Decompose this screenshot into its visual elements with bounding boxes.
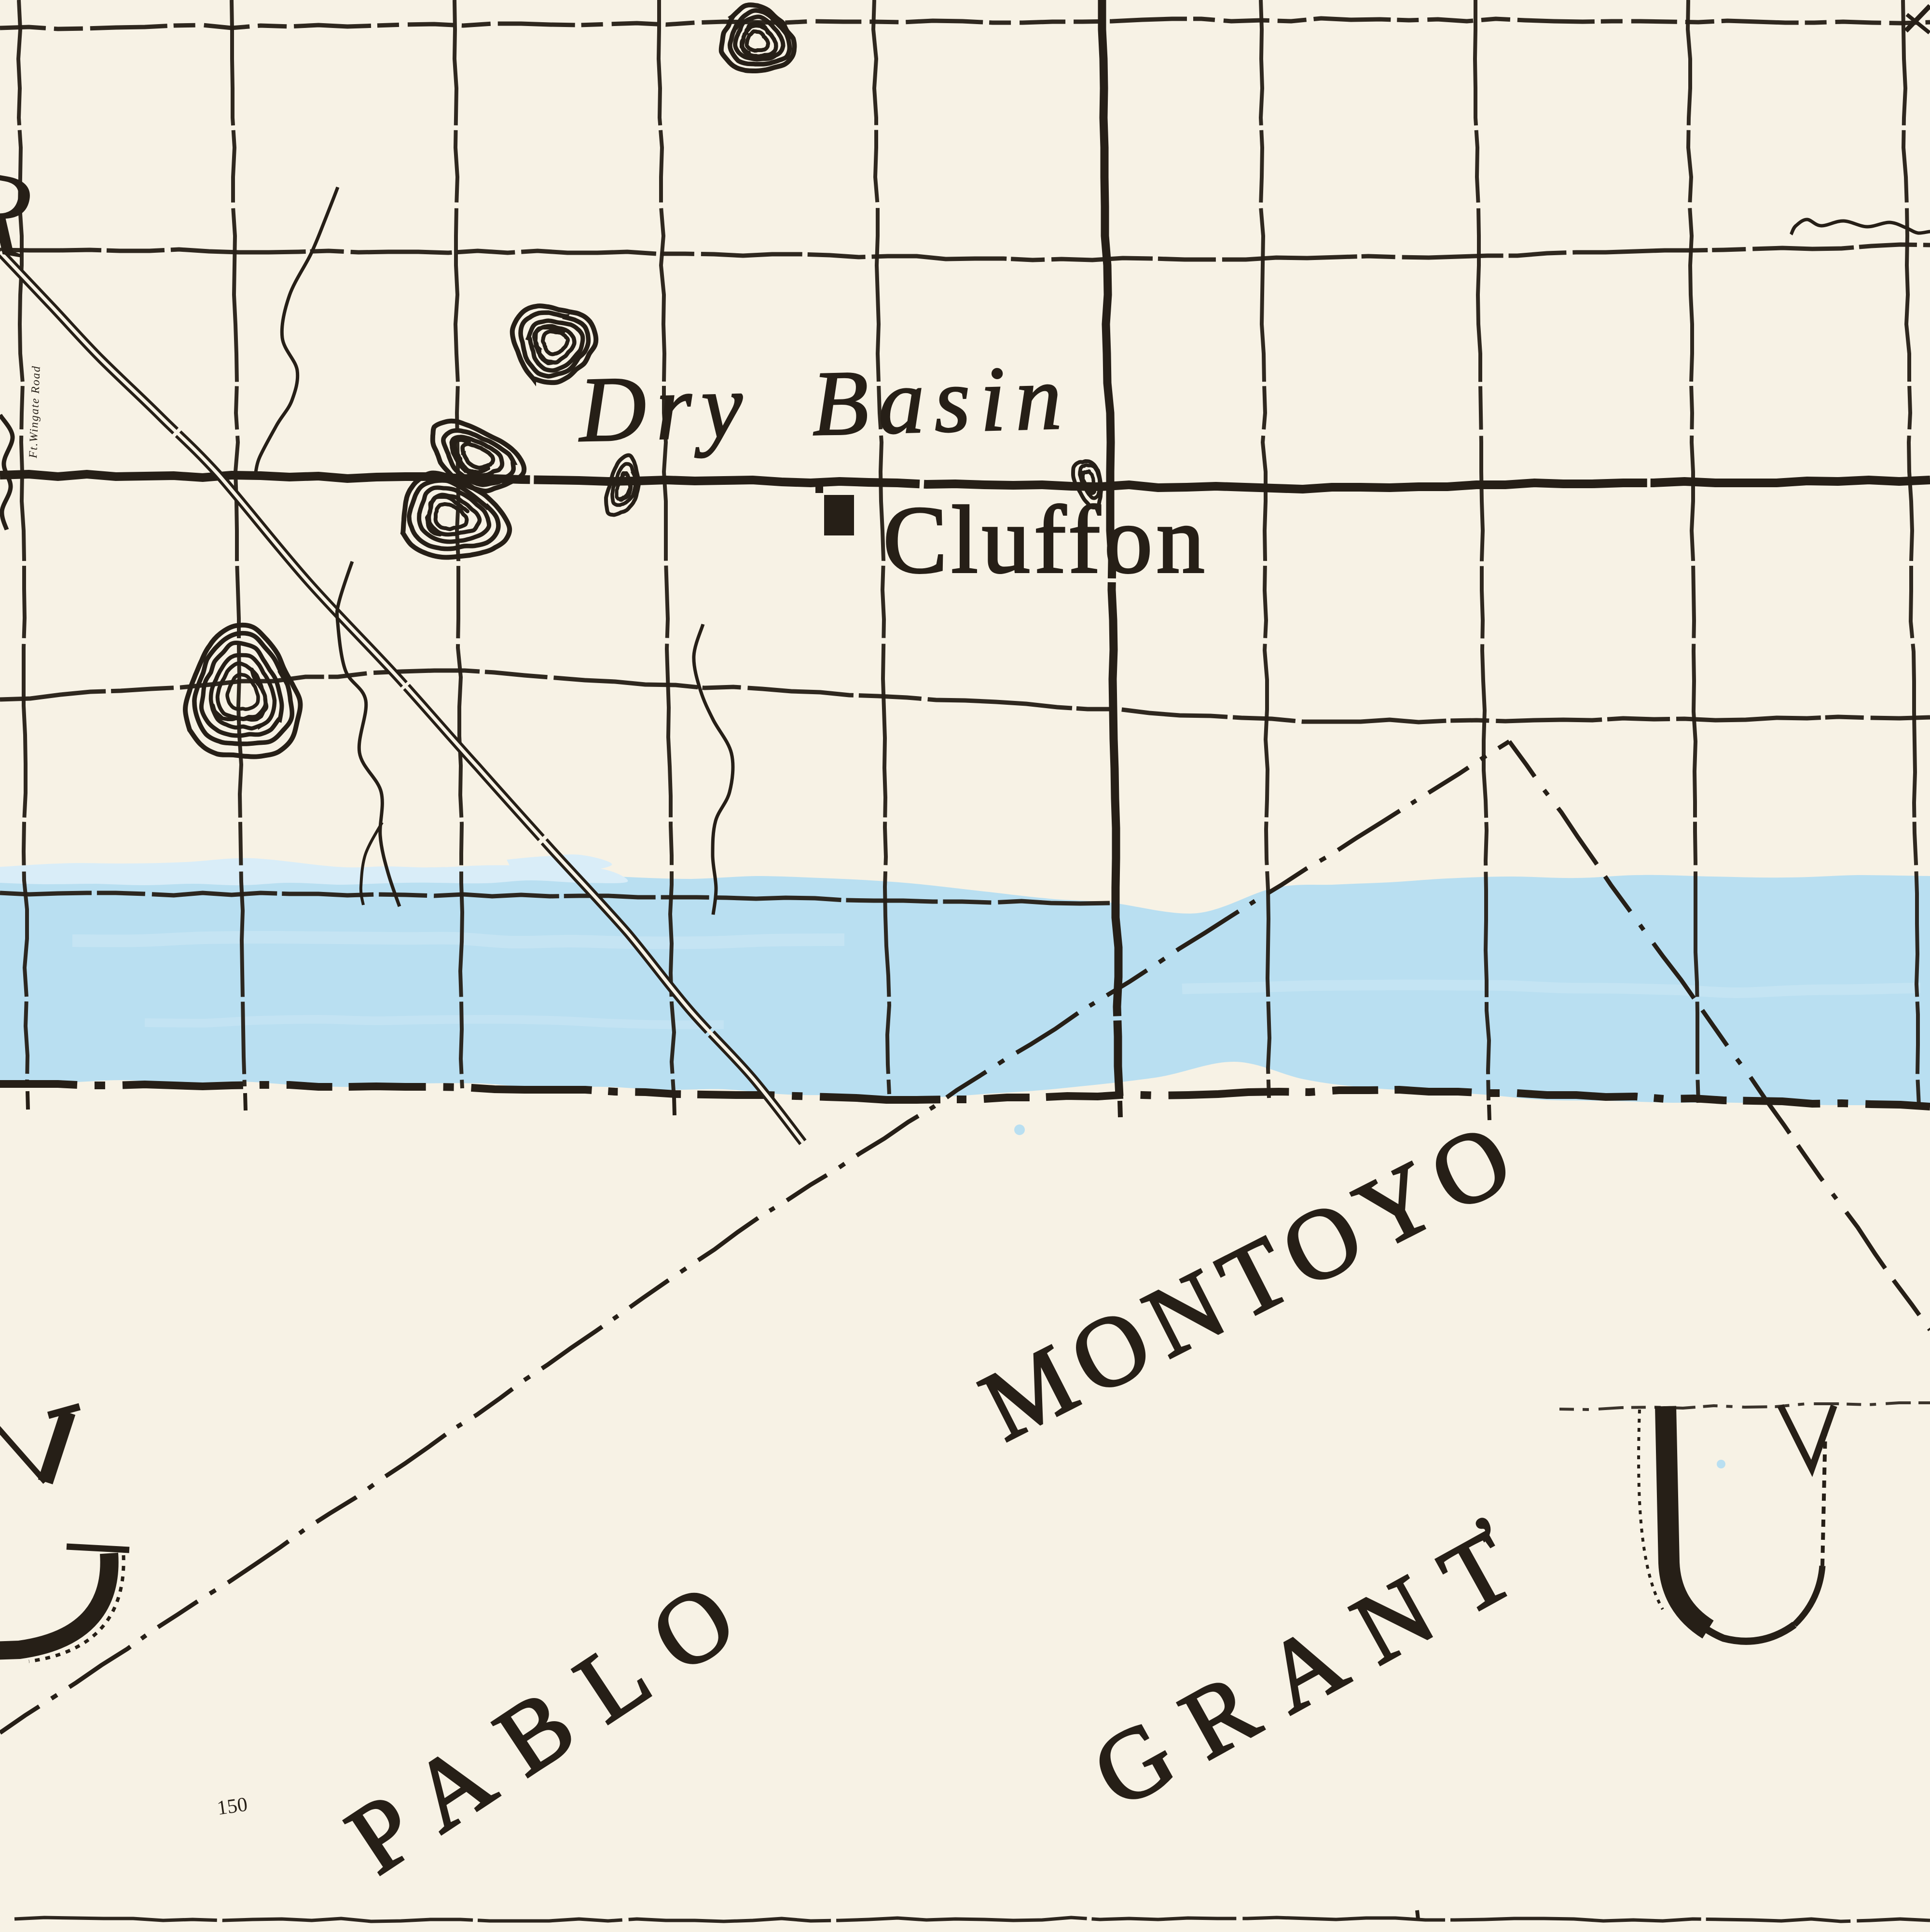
svg-text:Cluffon: Cluffon bbox=[883, 487, 1209, 593]
svg-text:150: 150 bbox=[216, 1794, 249, 1820]
svg-text:Dry Basin: Dry Basin bbox=[577, 345, 1073, 461]
